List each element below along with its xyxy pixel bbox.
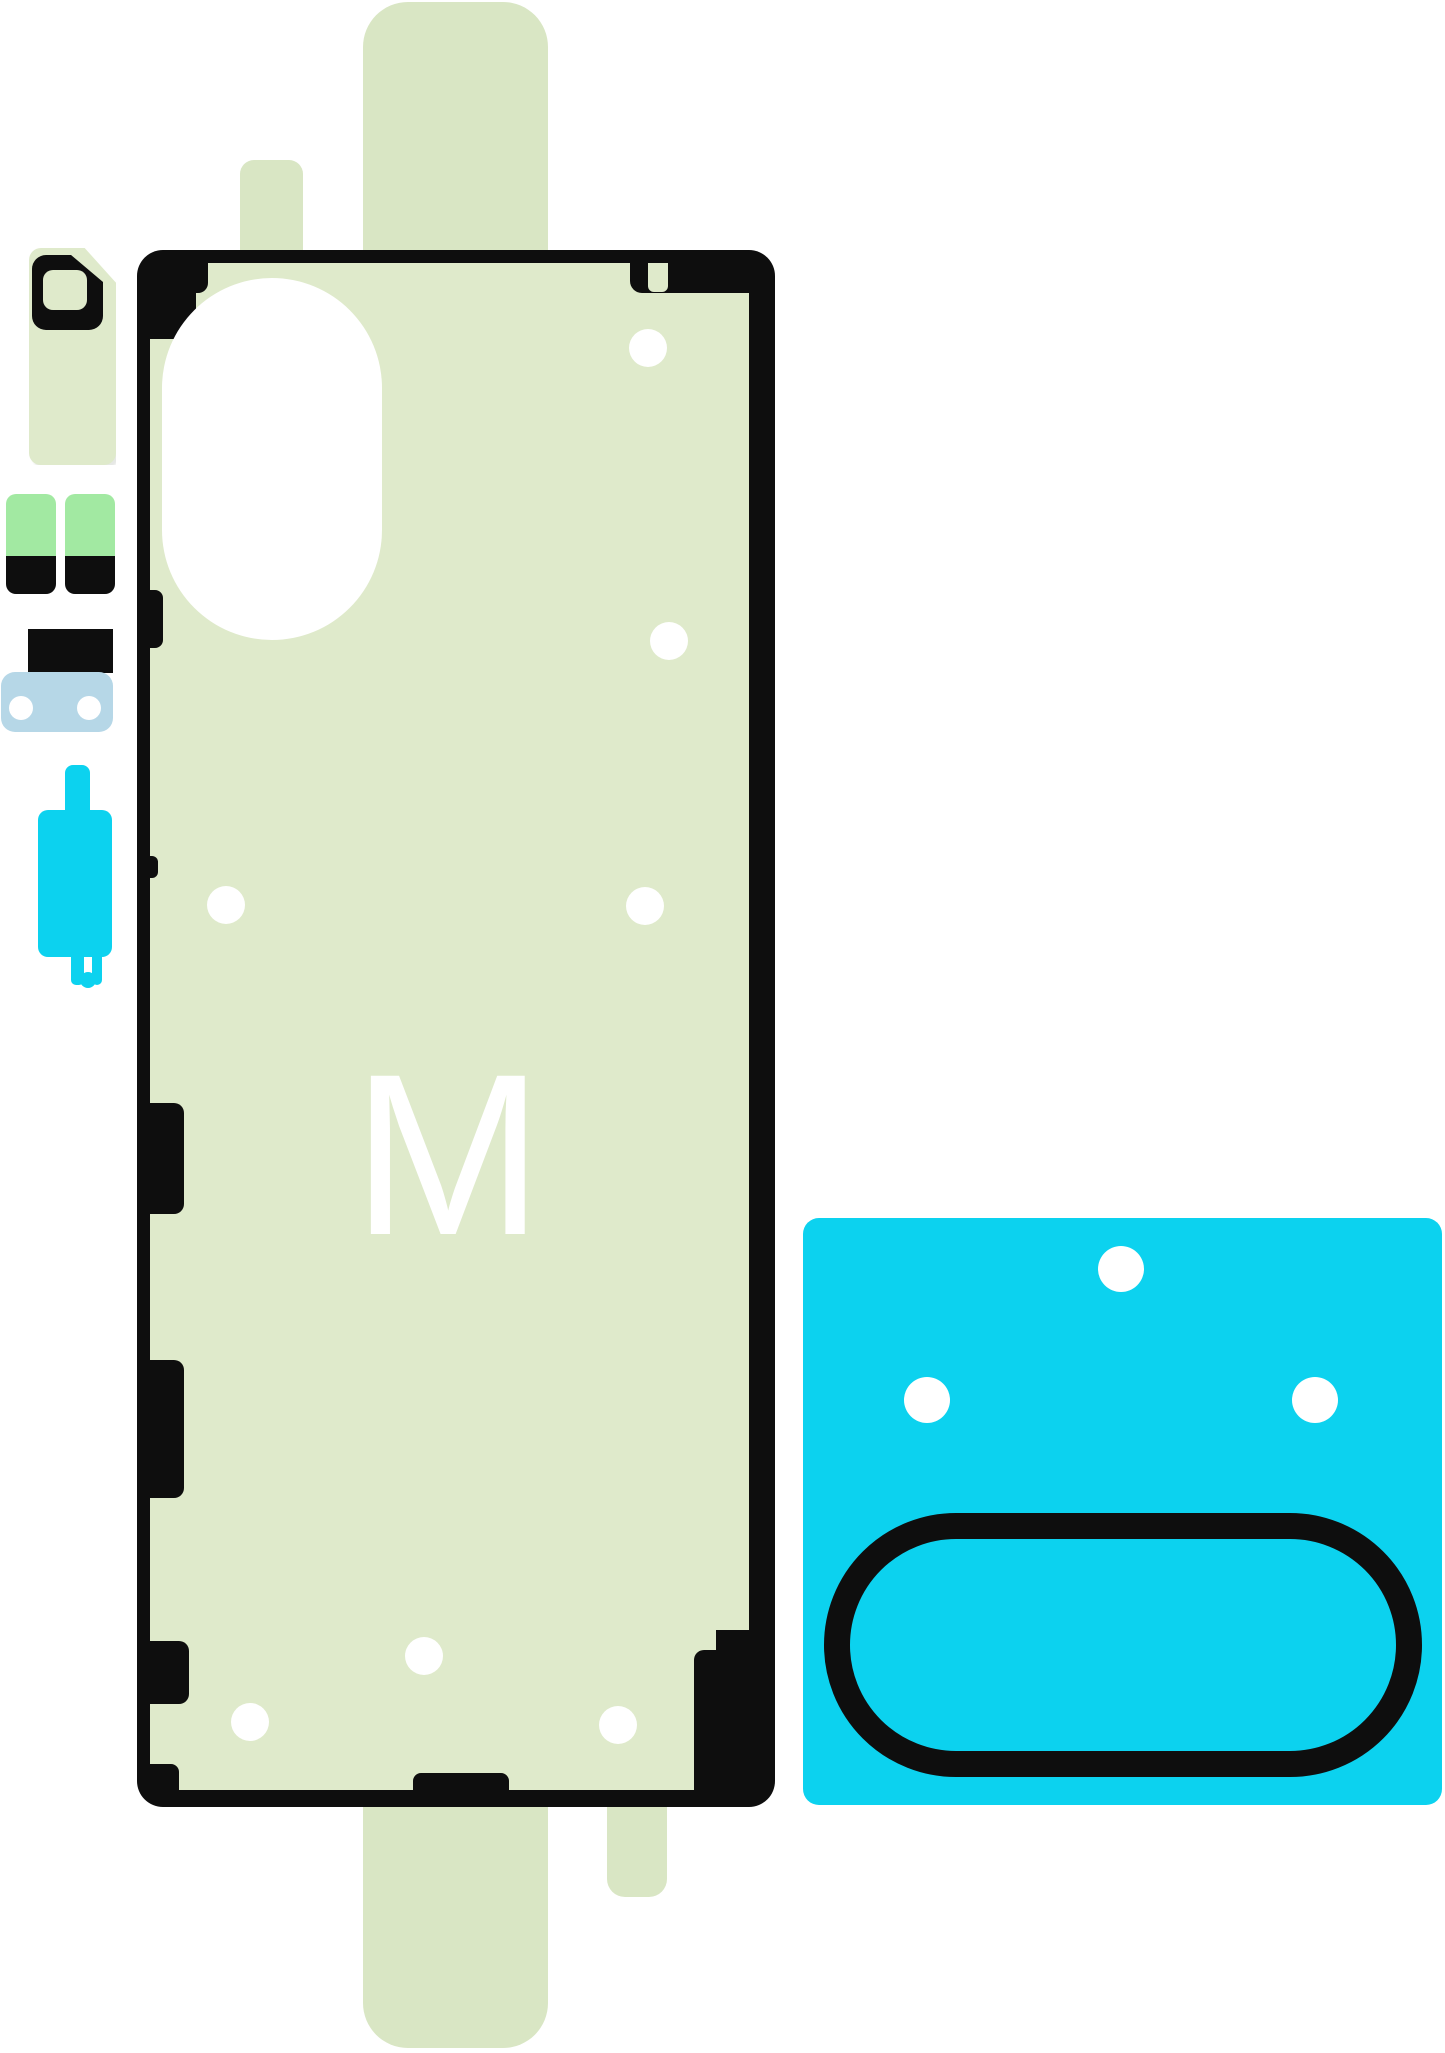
alignment-hole: [207, 886, 245, 924]
liner-tab-top-right: [648, 263, 668, 292]
alignment-hole: [1098, 1246, 1144, 1292]
pull-tab-green-section: [6, 494, 56, 556]
adhesive-pull-tab-right: [65, 494, 115, 594]
alignment-hole: [599, 1706, 637, 1744]
alignment-hole: [1292, 1377, 1338, 1423]
adhesive-notch-left-upper: [150, 590, 163, 648]
panel-letter-marking: M: [352, 1040, 544, 1270]
camera-ring-hole: [43, 270, 87, 310]
adhesive-notch-left-1: [150, 1103, 184, 1214]
adhesive-notch-left-small: [150, 856, 158, 878]
button-bracket-top-tab: [65, 765, 90, 815]
bracket-hole: [9, 696, 33, 720]
alignment-hole: [231, 1703, 269, 1741]
bracket-hole: [77, 696, 101, 720]
button-bracket-round-notch: [80, 972, 96, 988]
adhesive-kit-diagram: M: [0, 0, 1445, 2053]
camera-window-outline: [824, 1513, 1422, 1777]
camera-oval-cutout: [162, 278, 382, 640]
pull-tab-black-section: [6, 556, 56, 594]
spacer-bar-sticker: [28, 629, 113, 673]
adhesive-notch-left-3: [150, 1641, 189, 1704]
adhesive-notch-bottom-right: [694, 1650, 756, 1791]
alignment-hole: [626, 887, 664, 925]
button-bracket-sticker: [38, 810, 112, 957]
alignment-hole: [904, 1377, 950, 1423]
adhesive-notch-bottom: [413, 1773, 509, 1791]
adhesive-pull-tab-left: [6, 494, 56, 594]
adhesive-notch-left-2: [150, 1360, 184, 1498]
alignment-hole: [650, 622, 688, 660]
pull-tab-black-section: [65, 556, 115, 594]
pull-tab-green-section: [65, 494, 115, 556]
alignment-hole: [405, 1637, 443, 1675]
adhesive-notch-bottom-left: [150, 1764, 179, 1790]
alignment-hole: [629, 329, 667, 367]
